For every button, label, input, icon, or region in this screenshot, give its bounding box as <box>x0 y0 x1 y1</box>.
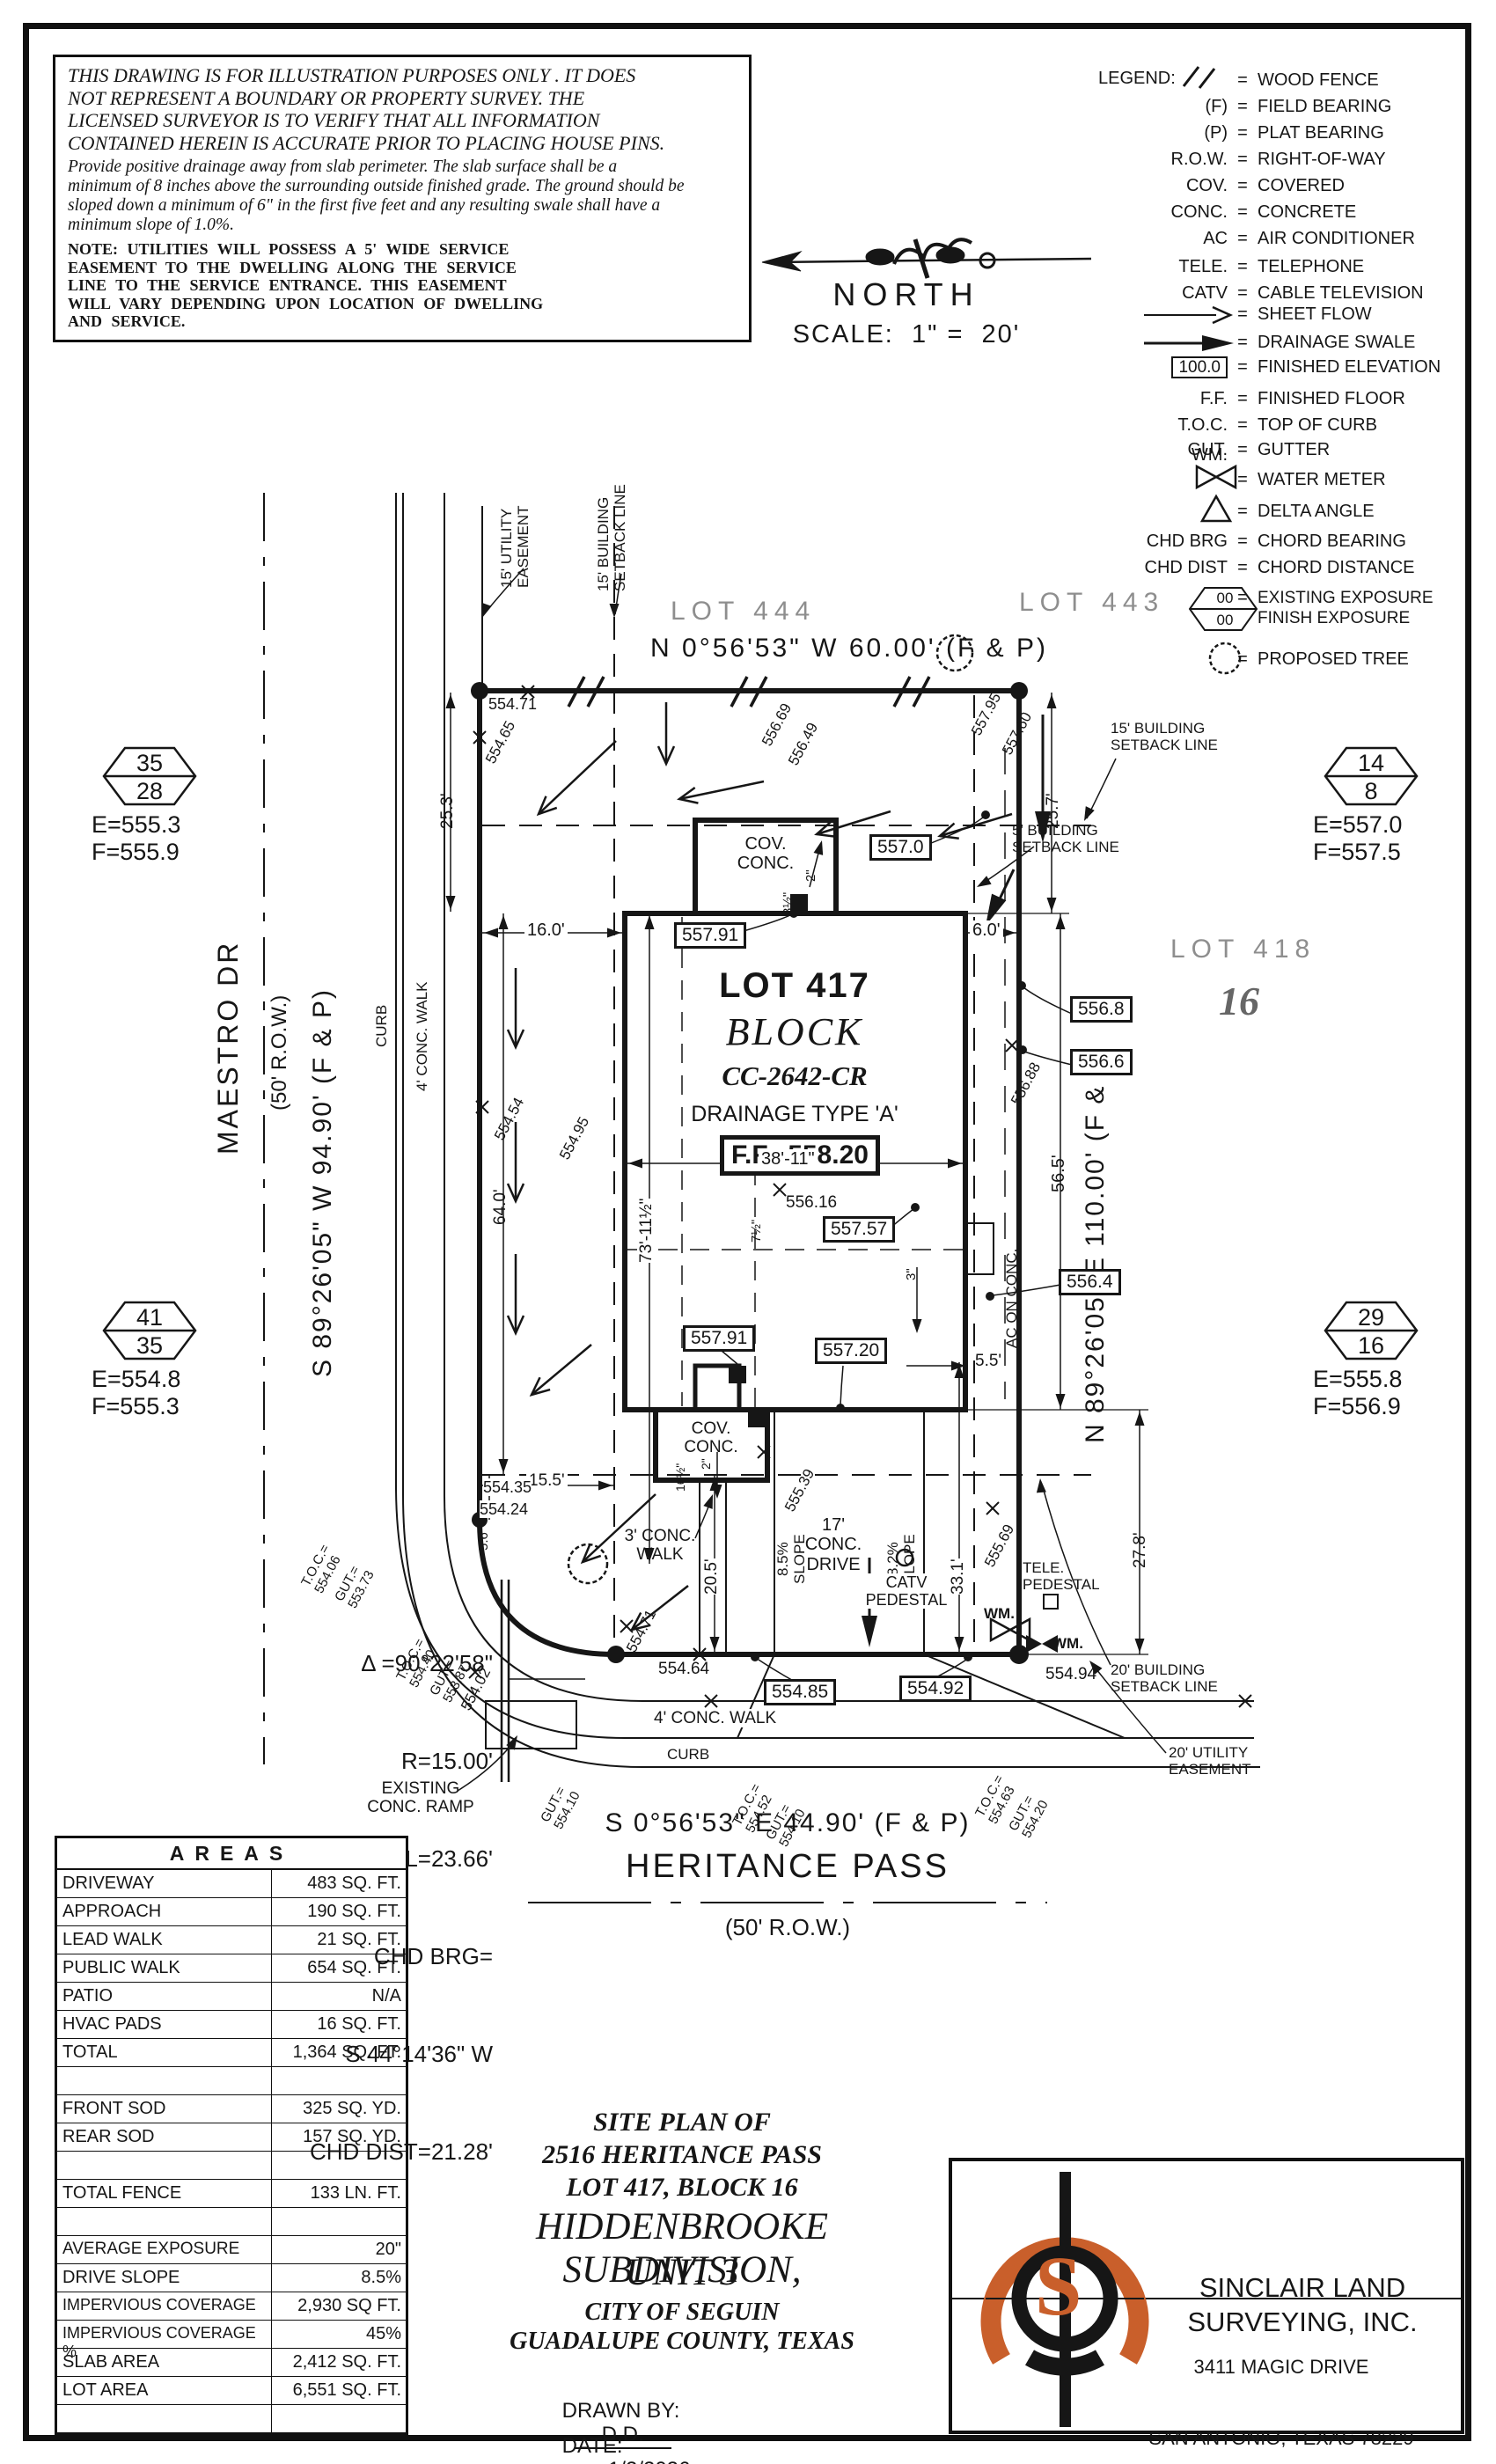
exposure-values: E=555.8F=556.9 <box>1313 1366 1402 1420</box>
table-row: TOTAL1,364 SQ. FT. <box>57 2039 406 2067</box>
utility-easement-15-label: 15' UTILITY EASEMENT <box>498 505 532 588</box>
block-label: BLOCK <box>689 1010 900 1053</box>
north-label: NORTH <box>783 277 1030 312</box>
boxed-elevation: 557.20 <box>815 1338 887 1364</box>
dim-25-3: 25.3' <box>438 793 457 829</box>
dim-20-5: 20.5' <box>702 1558 721 1595</box>
exposure-values: E=554.8F=555.3 <box>92 1366 180 1420</box>
building-setback-20-label: 20' BUILDING SETBACK LINE <box>1111 1661 1218 1695</box>
surveyor-city: SAN ANTONIO, TEXAS 78229 <box>1102 2426 1461 2450</box>
table-row <box>57 2152 406 2180</box>
ac-pad <box>965 1223 994 1274</box>
table-row: REAR SOD157 SQ. YD. <box>57 2123 406 2152</box>
boxed-elevation: 556.8 <box>1070 996 1133 1023</box>
conc-walk-3-label: 3' CONC. WALK <box>616 1527 704 1565</box>
tele-pedestal-label: TELE. PEDESTAL <box>1023 1559 1100 1593</box>
finished-elevation-sample: 100.0 <box>1171 356 1228 378</box>
dim-3-5in: 3½" <box>781 892 796 915</box>
heritance-pass-label: HERITANCE PASS <box>576 1848 999 1886</box>
dim-16-0: 16.0' <box>524 920 568 940</box>
boxed-elevation: 554.92 <box>899 1676 972 1702</box>
legend-desc: WOOD FENCE <box>1258 70 1379 91</box>
table-row: LOT AREA6,551 SQ. FT. <box>57 2377 406 2405</box>
table-row <box>57 2208 406 2236</box>
north-arrow-ornament <box>762 239 1091 278</box>
boxed-elevation: 557.91 <box>683 1325 755 1352</box>
lot-418-label: LOT 418 <box>1170 935 1316 964</box>
drive-slope-85-label: 8.5% SLOPE <box>774 1534 808 1584</box>
legend-hex-bottom: 00 <box>1205 612 1245 628</box>
table-row: HVAC PADS16 SQ. FT. <box>57 2011 406 2039</box>
delta-angle: Δ =90°22'58" <box>211 1647 493 1680</box>
ac-on-conc-label: AC ON CONC. <box>1003 1249 1020 1348</box>
boxed-elevation: 556.4 <box>1059 1269 1121 1295</box>
radius: R=15.00' <box>211 1745 493 1778</box>
dim-2in-rear: 2" <box>700 1458 714 1470</box>
drainage-type: DRAINAGE TYPE 'A' <box>667 1102 922 1126</box>
maestro-dr-label: MAESTRO DR <box>213 941 245 1155</box>
spot-elevation: 554.94 <box>1045 1665 1096 1683</box>
utility-easement-20-label: 20' UTILITY EASEMENT <box>1169 1744 1251 1778</box>
date-value: 1/2/2026 <box>575 2459 724 2464</box>
hex-number: 35 <box>123 750 176 776</box>
date-row: DATE: 1/2/2026 <box>539 2411 724 2464</box>
hex-number: 28 <box>123 778 176 804</box>
table-row: SLAB AREA2,412 SQ. FT. <box>57 2349 406 2377</box>
water-meter-label: WM. <box>984 1605 1015 1622</box>
covered-conc-rear-label: COV. CONC. <box>667 1419 755 1457</box>
conc-walk-4-left-label: 4' CONC. WALK <box>414 982 430 1091</box>
covered-conc-front-label: COV. CONC. <box>722 834 810 874</box>
table-row: PATION/A <box>57 1983 406 2011</box>
boxed-elevation: 557.0 <box>869 834 932 861</box>
surveyor-street: 3411 MAGIC DRIVE <box>1102 2355 1461 2379</box>
maestro-row-label: (50' R.O.W.) <box>268 995 292 1111</box>
disclaimer-paragraph: THIS DRAWING IS FOR ILLUSTRATION PURPOSE… <box>68 64 737 154</box>
table-row: LEAD WALK21 SQ. FT. <box>57 1926 406 1954</box>
curb-bottom-label: CURB <box>667 1746 709 1763</box>
table-row: DRIVEWAY483 SQ. FT. <box>57 1870 406 1898</box>
boxed-elevation: 557.91 <box>674 922 746 949</box>
legend-hex-top: 00 <box>1205 590 1245 606</box>
spot-elevation: 556.16 <box>786 1193 837 1212</box>
table-row: TOTAL FENCE133 LN. FT. <box>57 2180 406 2208</box>
dim-33-1: 33.1' <box>949 1558 967 1595</box>
table-row: FRONT SOD325 SQ. YD. <box>57 2095 406 2123</box>
hex-number: 14 <box>1345 750 1397 776</box>
heritance-row-label: (50' R.O.W.) <box>576 1915 999 1940</box>
table-row: AVERAGE EXPOSURE20" <box>57 2236 406 2264</box>
dim-6-0: 6.0' <box>970 920 1003 940</box>
lot-block-line: LOT 417, BLOCK 16 <box>414 2173 950 2203</box>
utilities-note: NOTE: UTILITIES WILL POSSESS A 5' WIDE S… <box>68 240 737 331</box>
dim-3in: 3" <box>905 1268 920 1280</box>
table-row <box>57 2405 406 2432</box>
city-line: CITY OF SEGUIN <box>414 2299 950 2327</box>
areas-table: AREAS DRIVEWAY483 SQ. FT. APPROACH190 SQ… <box>55 1836 408 2435</box>
spot-elevation: 554.64 <box>658 1660 709 1678</box>
site-plan-sheet: THIS DRAWING IS FOR ILLUSTRATION PURPOSE… <box>0 0 1496 2464</box>
building-setback-15-label: 15' BUILDING SETBACK LINE <box>595 484 628 591</box>
table-row: APPROACH190 SQ. FT. <box>57 1898 406 1926</box>
lot-444-label: LOT 444 <box>671 597 816 627</box>
radius-curve <box>480 1520 616 1654</box>
county-line: GUADALUPE COUNTY, TEXAS <box>414 2328 950 2356</box>
hex-number: 35 <box>123 1332 176 1359</box>
bearing-north: N 0°56'53" W 60.00' (F & P) <box>519 634 1179 664</box>
building-setback-5-label: 5' BUILDING SETBACK LINE <box>1012 822 1119 855</box>
dim-5-6: 5.6' <box>477 1529 492 1551</box>
drainage-note: Provide positive drainage away from slab… <box>68 158 737 235</box>
plat-number: CC-2642-CR <box>689 1061 900 1092</box>
bearing-east: N 89°26'05" E 110.00' (F & P) <box>1081 1045 1111 1443</box>
dim-7-5in: 7½" <box>750 1220 765 1243</box>
exposure-values: E=557.0F=557.5 <box>1313 811 1402 866</box>
address-line: 2516 HERITANCE PASS <box>414 2140 950 2170</box>
lot-417-title: LOT 417 <box>689 966 900 1006</box>
dim-56-5: 56.5' <box>1049 1155 1068 1192</box>
tele-pedestal-icon <box>1044 1595 1058 1609</box>
spot-elevation: 554.35 <box>483 1478 532 1496</box>
water-meter-label-2: WM. <box>1052 1635 1083 1652</box>
dim-2in: 2" <box>804 869 819 882</box>
dim-5-5: 5.5' <box>975 1352 1001 1370</box>
surveyor-address: 3411 MAGIC DRIVE SAN ANTONIO, TEXAS 7822… <box>1102 2307 1461 2464</box>
spot-elevation: 554.24 <box>480 1500 528 1518</box>
dim-27-8: 27.8' <box>1131 1532 1149 1568</box>
dim-64-0: 64.0' <box>491 1189 510 1225</box>
dim-15-5: 15.5' <box>526 1471 568 1490</box>
exposure-values: E=555.3F=555.9 <box>92 811 180 866</box>
unit-line: UNIT 3 <box>414 2251 950 2294</box>
block-16-label: 16 <box>1219 979 1259 1024</box>
boxed-elevation: 557.57 <box>823 1216 895 1243</box>
table-row: IMPERVIOUS COVERAGE %45% <box>57 2321 406 2349</box>
table-row: DRIVE SLOPE8.5% <box>57 2264 406 2292</box>
table-row <box>57 2067 406 2095</box>
scale-label: SCALE: 1" = 20' <box>748 320 1065 348</box>
logo-letter: S <box>1035 2244 1082 2328</box>
hex-number: 41 <box>123 1304 176 1331</box>
lot-443-label: LOT 443 <box>1019 588 1164 618</box>
areas-title: AREAS <box>57 1838 406 1870</box>
table-row: IMPERVIOUS COVERAGE2,930 SQ FT. <box>57 2292 406 2321</box>
building-setback-15-right-label: 15' BUILDING SETBACK LINE <box>1111 720 1218 753</box>
spot-elevation: 554.71 <box>488 695 537 713</box>
bearing-west: S 89°26'05" W 94.90' (F & P) <box>308 988 338 1377</box>
dim-16-5in: 16½" <box>674 1463 688 1492</box>
boxed-elevation: 556.6 <box>1070 1049 1133 1075</box>
disclaimer-box: THIS DRAWING IS FOR ILLUSTRATION PURPOSE… <box>53 55 752 342</box>
table-row: PUBLIC WALK654 SQ. FT. <box>57 1954 406 1983</box>
catv-pedestal-label: CATV PEDESTAL <box>858 1573 955 1609</box>
water-meter-icon <box>991 1619 1030 1640</box>
hex-number: 16 <box>1345 1332 1397 1359</box>
date-label: DATE: <box>562 2434 623 2458</box>
dim-73-11: 73'-11½" <box>637 1199 656 1263</box>
boxed-elevation: 554.85 <box>764 1679 836 1705</box>
site-plan-of: SITE PLAN OF <box>414 2108 950 2138</box>
conc-walk-4-bottom-label: 4' CONC. WALK <box>651 1709 779 1727</box>
hex-number: 29 <box>1345 1304 1397 1331</box>
dim-25-7: 25.7' <box>1044 793 1062 829</box>
hex-number: 8 <box>1345 778 1397 804</box>
curb-left-label: CURB <box>373 1005 390 1047</box>
dim-38-11: 38'-11" <box>759 1149 818 1169</box>
